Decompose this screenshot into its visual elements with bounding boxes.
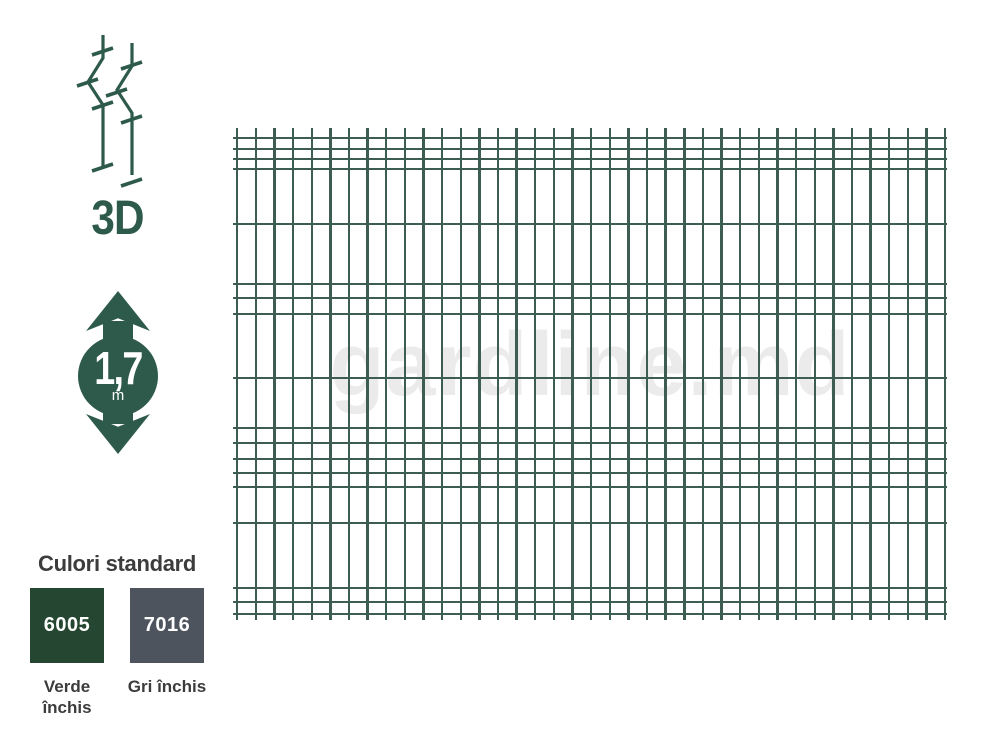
fence-wire-vertical <box>273 128 275 620</box>
fence-wire-vertical <box>925 128 927 620</box>
swatch-name-verde-inchis: Verde închis <box>27 676 107 718</box>
swatch-code: 7016 <box>144 614 191 637</box>
fence-wire-vertical <box>646 128 648 620</box>
colors-section-title: Culori standard <box>38 551 258 577</box>
fence-wire-vertical <box>702 128 704 620</box>
fence-wire-vertical <box>404 128 406 620</box>
fence-wire-vertical <box>422 128 424 620</box>
fence-wire-vertical <box>534 128 536 620</box>
fence-wire-vertical <box>814 128 816 620</box>
swatch-code: 6005 <box>44 614 91 637</box>
fence-panel: gardline.md <box>233 128 947 620</box>
fence-wire-vertical <box>664 128 666 620</box>
fence-wire-vertical <box>776 128 778 620</box>
color-swatch-7016: 7016 <box>130 588 204 663</box>
fence-wire-vertical <box>739 128 741 620</box>
fence-wire-vertical <box>366 128 368 620</box>
fence-wire-vertical <box>329 128 331 620</box>
fence-wire-vertical <box>571 128 573 620</box>
fence-wire-vertical <box>460 128 462 620</box>
fence-profile-3d-icon <box>60 20 155 190</box>
height-value: 1,7 <box>94 350 142 386</box>
color-swatch-6005: 6005 <box>30 588 104 663</box>
fence-wire-vertical <box>832 128 834 620</box>
fence-wire-vertical <box>888 128 890 620</box>
fence-wire-vertical <box>497 128 499 620</box>
fence-wire-vertical <box>851 128 853 620</box>
fence-wire-vertical <box>627 128 629 620</box>
swatch-name-gri-inchis: Gri închis <box>127 676 207 697</box>
fence-wire-vertical <box>590 128 592 620</box>
fence-wire-vertical <box>441 128 443 620</box>
fence-wire-vertical <box>758 128 760 620</box>
fence-wire-vertical <box>478 128 480 620</box>
fence-wire-vertical <box>292 128 294 620</box>
fence-wire-vertical <box>795 128 797 620</box>
fence-wire-vertical <box>869 128 871 620</box>
fence-wire-vertical <box>720 128 722 620</box>
fence-wire-vertical <box>944 128 946 620</box>
fence-wire-vertical <box>385 128 387 620</box>
fence-wire-vertical <box>907 128 909 620</box>
fence-wire-vertical <box>348 128 350 620</box>
fence-wire-vertical <box>609 128 611 620</box>
fence-wire-vertical <box>255 128 257 620</box>
fence-wire-vertical <box>515 128 517 620</box>
height-indicator: 1,7 m <box>76 291 160 454</box>
fence-wire-vertical <box>236 128 238 620</box>
product-illustration: 3D 1,7 m Culori standard 6005 7016 Verde… <box>0 0 1001 751</box>
fence-wire-vertical <box>311 128 313 620</box>
profile-3d-label: 3D <box>67 198 168 240</box>
fence-wire-vertical <box>683 128 685 620</box>
fence-wire-vertical <box>553 128 555 620</box>
arrow-shaft <box>103 402 133 424</box>
